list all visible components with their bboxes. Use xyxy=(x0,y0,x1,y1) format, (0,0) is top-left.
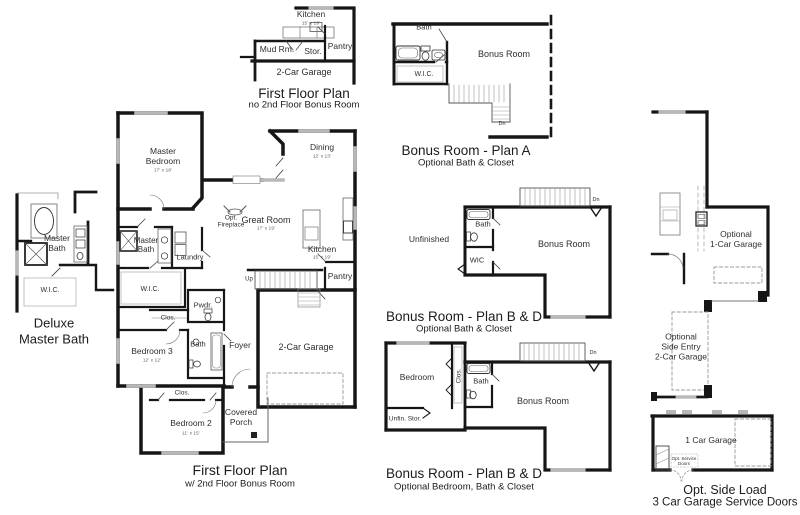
dim-label-master-bedroom: 17' x 18' xyxy=(154,167,172,172)
dim-label-great-room: 17' x 19' xyxy=(257,225,275,230)
plan-subtitle-bd-bedroom: Optional Bedroom, Bath & Closet xyxy=(394,482,534,493)
label-line: Doors xyxy=(672,461,697,466)
one-car-garage-door-dashed xyxy=(714,267,762,283)
deluxe-vanity-icon xyxy=(74,226,87,262)
room-label-laundry: Laundry xyxy=(176,254,203,263)
room-label-foyer: Foyer xyxy=(229,341,251,351)
room-label-unfinished: Unfinished xyxy=(409,235,449,245)
room-label-unfin-stor: Unfin. Stor. xyxy=(389,415,421,422)
room-label-bd2-bedroom: Bedroom xyxy=(400,373,435,383)
label-service-doors: Opt. ServiceDoors xyxy=(672,456,697,466)
label-line: Porch xyxy=(225,418,257,428)
room-label-wic-plan-a: W.I.C. xyxy=(414,71,433,79)
plan-a-sink-icon xyxy=(432,50,445,60)
floorplan-canvas xyxy=(0,0,800,515)
room-label-1car-garage: 1 Car Garage xyxy=(685,436,737,446)
room-label-bath-plan-a: Bath xyxy=(416,24,431,33)
plan-title-bonus-a: Bonus Room - Plan A xyxy=(401,143,530,159)
bd-bath-tub-icon xyxy=(467,210,490,220)
room-label-bd-bath: Bath xyxy=(475,221,490,230)
room-label-kitchen-nobonus: Kitchen xyxy=(297,10,325,20)
plan-title-deluxe: DeluxeMaster Bath xyxy=(19,315,89,346)
stairs-label-dn-bd2: Dn xyxy=(589,350,596,356)
bd-bath-toilet-icon xyxy=(467,232,478,241)
room-label-main-wic: W.I.C. xyxy=(140,286,159,294)
room-label-dining: Dining xyxy=(310,143,334,153)
plan-bonus-bd-bedroom xyxy=(386,343,610,470)
plan-subtitle-no-bonus: no 2nd Floor Bonus Room xyxy=(249,101,360,112)
room-label-bd2-bath: Bath xyxy=(473,378,488,387)
room-label-deluxe-wic: W.I.C. xyxy=(40,287,59,295)
room-label-bd-wic: WIC xyxy=(470,257,485,266)
room-label-bonus-room-plan-a: Bonus Room xyxy=(478,49,530,59)
label-line: 1-Car Garage xyxy=(710,240,762,250)
room-label-stor: Stor. xyxy=(304,47,321,57)
label-line: Bedroom xyxy=(146,157,181,167)
room-label-great-room: Great Room xyxy=(241,215,290,225)
service-stoop-icon xyxy=(656,446,669,470)
dim-label-dining: 12' x 13' xyxy=(313,153,331,158)
plan-title-bd-bath: Bonus Room - Plan B & D xyxy=(386,309,542,325)
plan-subtitle-side-load: 3 Car Garage Service Doors xyxy=(652,496,797,509)
plan-title-bd-bedroom: Bonus Room - Plan B & D xyxy=(386,466,542,482)
room-label-bd-bonus-room: Bonus Room xyxy=(538,239,590,249)
dim-label-bedroom3: 12' x 12' xyxy=(143,357,161,362)
label-optional-1car-garage: Optional1-Car Garage xyxy=(710,230,762,250)
plan-a-stairs xyxy=(449,84,510,122)
label-line: Opt. xyxy=(218,215,245,222)
floorplan-sheet: Kitchen 15' x 19' Mud Rm. Stor. Pantry 2… xyxy=(0,0,800,515)
room-label-deluxe-master-bath: MasterBath xyxy=(44,234,70,254)
bd-bedroom-tub-icon xyxy=(467,364,490,374)
stairs-label-dn-bd-bath: Dn xyxy=(592,197,599,203)
room-label-clos-bedroom2: Clos. xyxy=(175,389,190,396)
room-label-main-garage: 2-Car Garage xyxy=(278,342,333,352)
plan-a-bathtub-icon xyxy=(396,46,420,60)
stairs-label-up: Up xyxy=(245,277,253,284)
main-vanity-icon xyxy=(158,229,171,263)
label-opt-fireplace: Opt.Fireplace xyxy=(218,215,245,230)
stairs-label-dn-plan-a: Dn xyxy=(498,121,505,127)
kitchen-island-icon xyxy=(303,210,320,248)
plan-title-side-load: Opt. Side Load xyxy=(683,482,766,496)
dim-label-bedroom2: 11' x 15' xyxy=(182,430,200,435)
bd-bedroom-stairs xyxy=(520,343,585,361)
room-label-bd2-clos: Clos. xyxy=(455,369,462,384)
plan-subtitle-main: w/ 2nd Floor Bonus Room xyxy=(185,479,295,490)
room-label-master-bedroom: MasterBedroom xyxy=(146,147,181,167)
plan-a-toilet-icon xyxy=(421,46,430,60)
bd-bedroom-toilet-icon xyxy=(467,390,477,399)
room-label-bedroom3: Bedroom 3 xyxy=(131,347,173,357)
room-label-main-kitchen: Kitchen xyxy=(308,245,336,255)
label-line: Master xyxy=(134,236,158,245)
room-label-pwdr: Pwdr. xyxy=(194,302,213,311)
room-label-pantry-nobonus: Pantry xyxy=(328,42,353,52)
label-line: Fireplace xyxy=(218,222,245,229)
side-load-garage-door-dashed xyxy=(735,419,771,466)
plan-optional-garages xyxy=(651,112,772,481)
label-side-entry-garage: OptionalSide Entry2-Car Garage xyxy=(655,332,707,361)
label-line: Bath xyxy=(44,244,70,254)
room-label-mud-rm: Mud Rm. xyxy=(260,45,294,55)
plan-subtitle-bd-bath: Optional Bath & Closet xyxy=(416,325,512,336)
main-stairs xyxy=(255,271,320,307)
room-label-garage-nobonus: 2-Car Garage xyxy=(276,67,331,77)
plan-title-main: First Floor Plan xyxy=(193,462,288,478)
label-line: Bath xyxy=(134,245,158,254)
room-label-main-pantry: Pantry xyxy=(328,272,353,282)
room-label-clos-hall: Clos. xyxy=(161,314,176,321)
plan-bonus-bd-bath xyxy=(458,188,610,317)
room-label-bedroom2: Bedroom 2 xyxy=(170,419,212,429)
dim-label-kitchen-nobonus: 15' x 19' xyxy=(302,20,320,25)
hall-bath-fixtures-icon xyxy=(189,333,222,370)
room-label-bd2-bonus-room: Bonus Room xyxy=(517,396,569,406)
bd-bath-stairs xyxy=(520,188,590,206)
room-label-main-bath: Bath xyxy=(190,341,205,350)
kitchen-counter-icon xyxy=(343,198,353,240)
garage-door-dashed xyxy=(267,373,343,404)
dim-label-main-kitchen: 15' x 19' xyxy=(313,254,331,259)
label-line: Master Bath xyxy=(19,331,89,347)
room-label-covered-porch: CoveredPorch xyxy=(225,408,257,428)
plan-subtitle-bonus-a: Optional Bath & Closet xyxy=(418,159,514,170)
label-line: 2-Car Garage xyxy=(655,352,707,362)
label-line: Deluxe xyxy=(19,315,89,331)
room-label-main-master-bath: MasterBath xyxy=(134,236,158,254)
kitchen-cabinets-icon xyxy=(660,193,680,235)
